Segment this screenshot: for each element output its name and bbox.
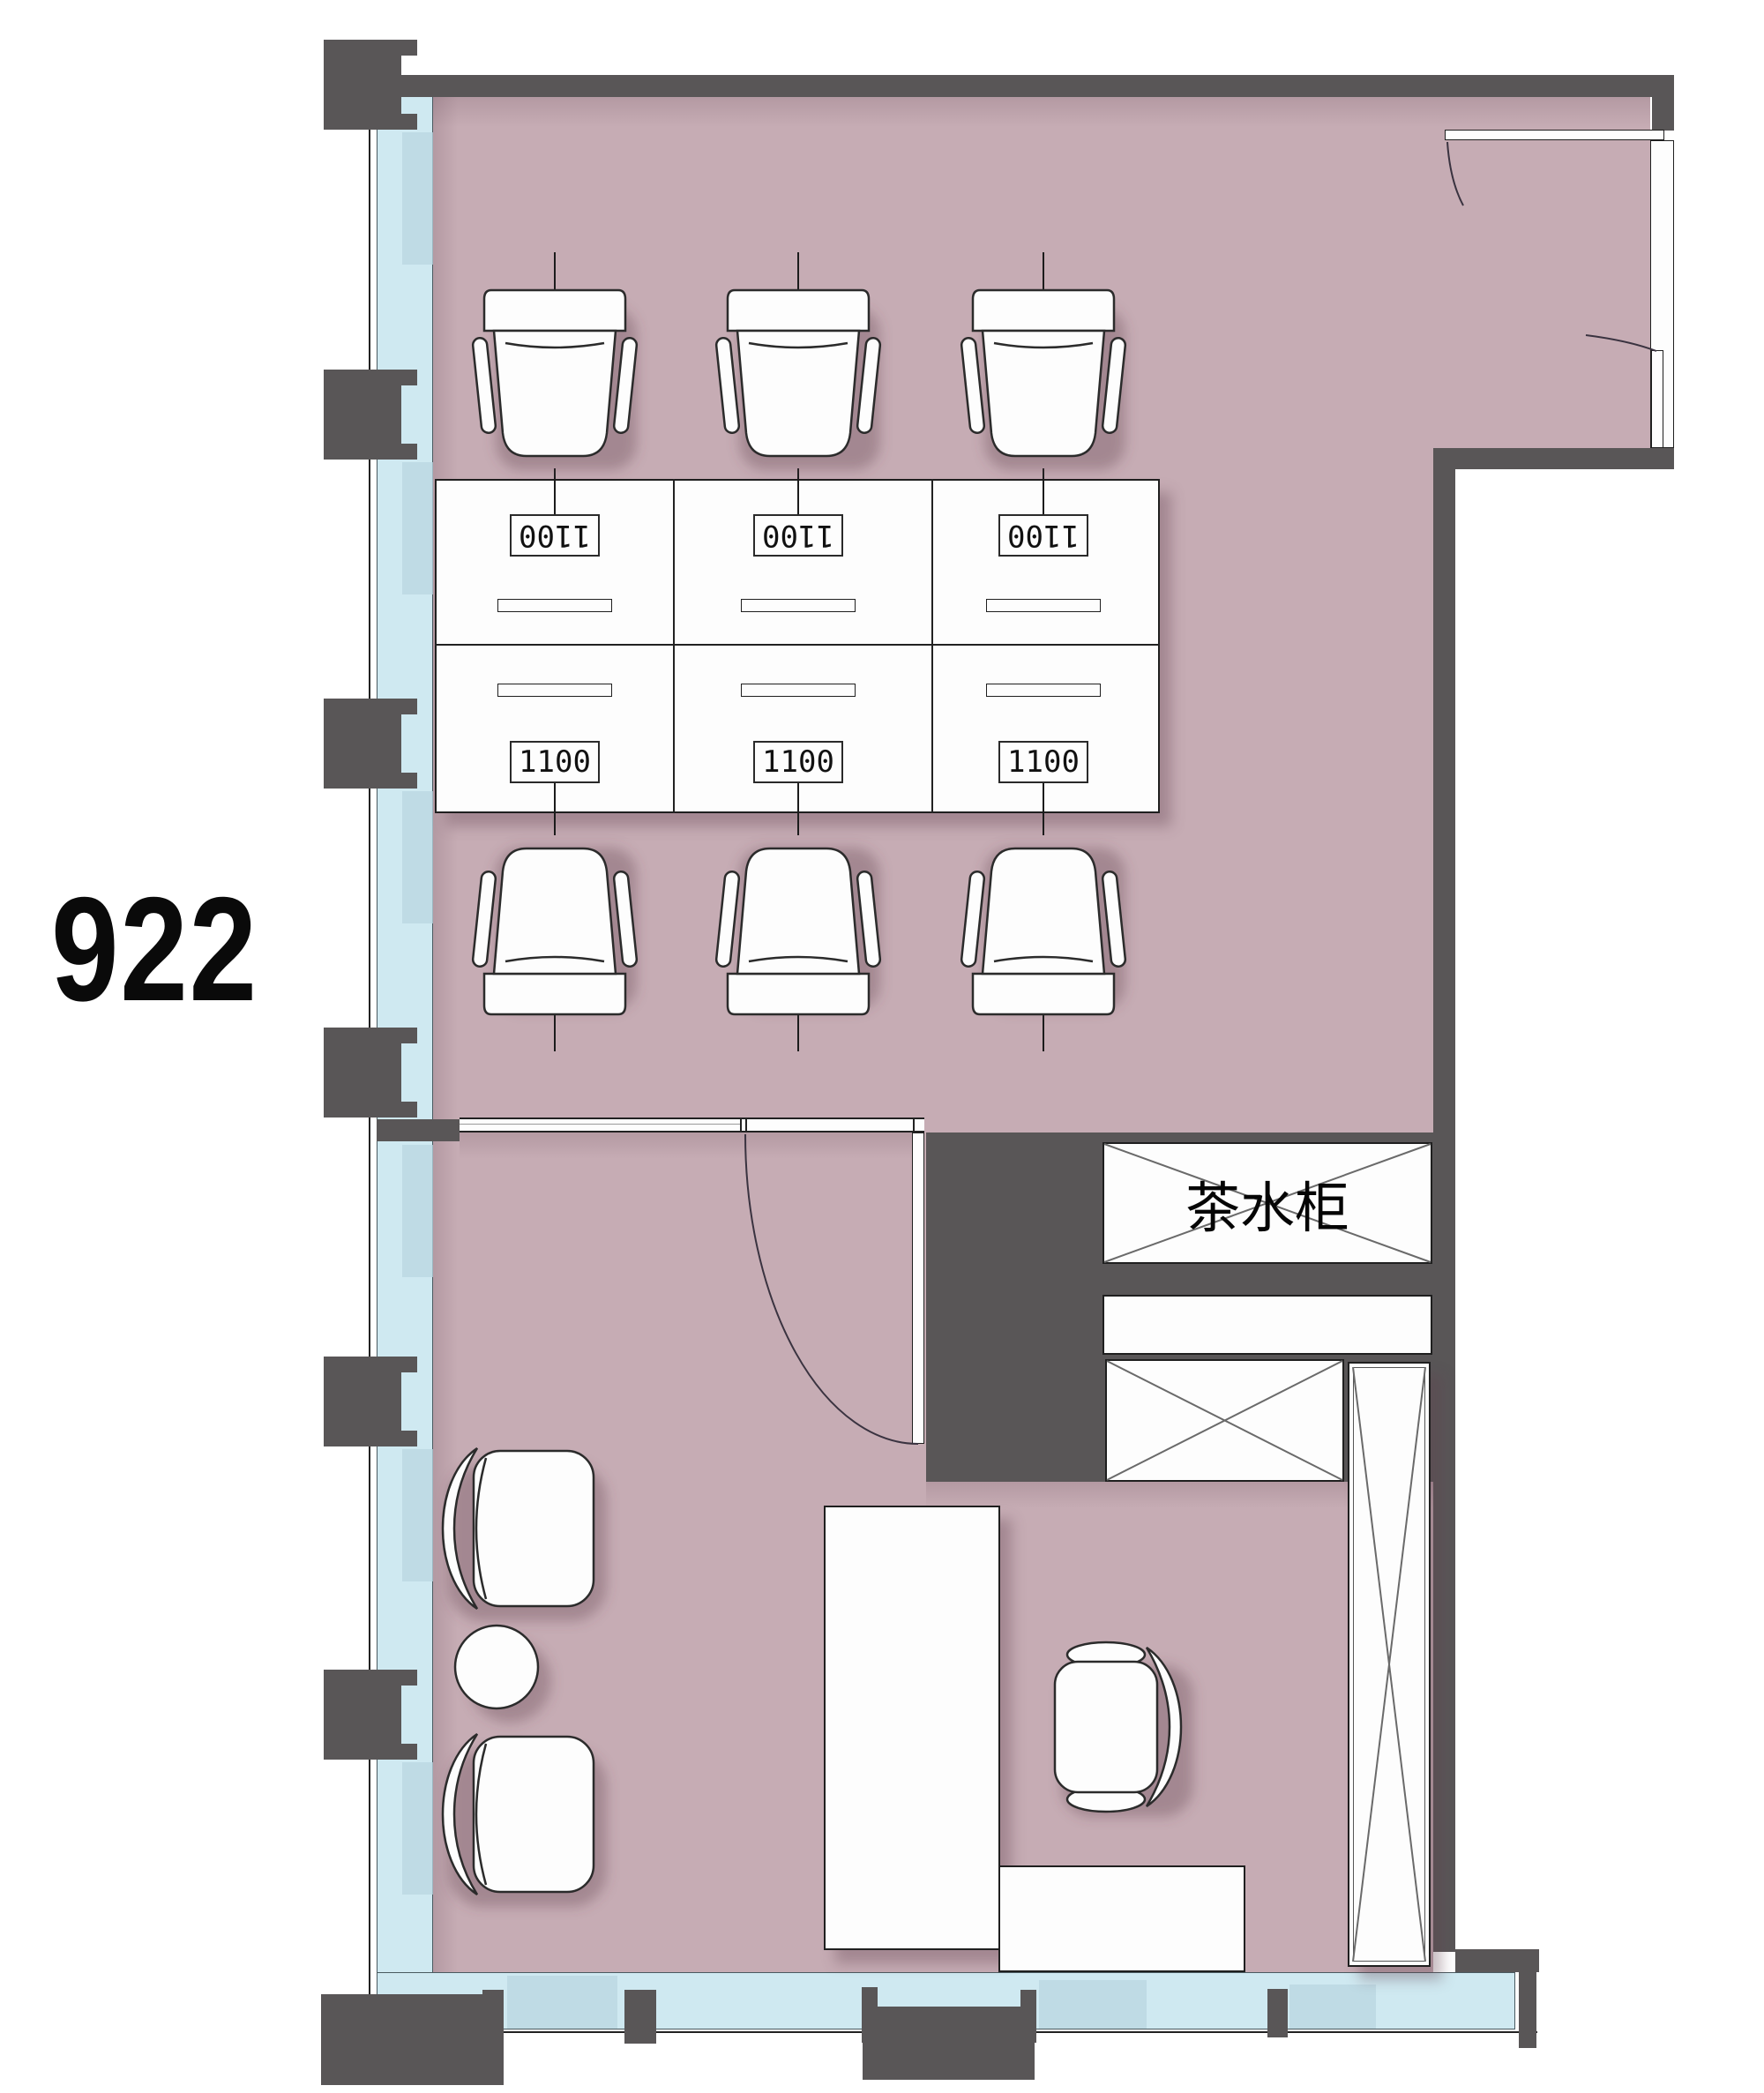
- dimension-text: 1100: [762, 518, 834, 553]
- drawer-slot: [497, 599, 612, 612]
- mullion-block-bottom-center: [863, 2007, 1035, 2080]
- corner-column-tab: [482, 1990, 504, 2043]
- glass-shade: [507, 1976, 617, 2029]
- partition-window-stub: [377, 1119, 460, 1141]
- mullion-tab: [862, 1987, 878, 2043]
- dimension-text: 1100: [1007, 518, 1080, 553]
- dimension-label: 1100: [753, 741, 843, 783]
- dimension-label: 1100: [998, 741, 1088, 783]
- mullion: [324, 1670, 401, 1760]
- dimension-text: 1100: [519, 744, 591, 780]
- desk-divider-h: [435, 644, 1160, 646]
- centerline-tick: [797, 783, 799, 835]
- mullion: [324, 40, 401, 130]
- glass-shade: [1039, 1980, 1147, 2029]
- window-shadow-left: [433, 97, 458, 1972]
- centerline-tick: [797, 252, 799, 296]
- glass-shade: [402, 1449, 433, 1581]
- dimension-label: 1100: [510, 741, 600, 783]
- mullion: [324, 699, 401, 789]
- desk-return: [998, 1865, 1245, 1972]
- top-right-corner-wall: [1652, 75, 1674, 131]
- dimension-text: 1100: [762, 744, 834, 780]
- right-wall-foot: [1519, 1972, 1536, 2048]
- door-jamb: [745, 1118, 747, 1132]
- dimension-label: 1100: [510, 514, 600, 557]
- mullion-stub-bottom: [1267, 1989, 1288, 2037]
- centerline-tick: [1043, 468, 1044, 514]
- floor-plan-922: 1100 1100 1100 1100 1100 1100: [0, 0, 1764, 2093]
- glass-shade: [402, 1145, 433, 1277]
- dimension-text: 1100: [519, 518, 591, 553]
- tall-cabinet: [1348, 1362, 1431, 1967]
- mullion-tab: [1020, 1990, 1036, 2043]
- partition-wall: [460, 1118, 924, 1132]
- alcove-wall-horizontal: [1433, 448, 1674, 469]
- mullion: [324, 1357, 401, 1446]
- corner-column-bottom-left: [321, 1994, 504, 2085]
- door-jamb: [913, 1118, 915, 1132]
- centerline-tick: [1043, 252, 1044, 296]
- centerline-tick: [554, 252, 556, 296]
- entry-screen-top: [1445, 130, 1664, 140]
- drawer-slot: [741, 684, 856, 697]
- mullion: [324, 1028, 401, 1118]
- drawer-slot: [986, 599, 1101, 612]
- centerline-tick: [1043, 1008, 1044, 1051]
- partition-shadow: [460, 1132, 924, 1159]
- glass-shade: [402, 462, 433, 594]
- mullion: [324, 370, 401, 460]
- door-leaf-right-entry: [1651, 350, 1663, 448]
- dimension-label: 1100: [753, 514, 843, 557]
- desk-divider-v: [931, 479, 933, 813]
- centerline-tick: [1043, 783, 1044, 835]
- drawer-slot: [741, 599, 856, 612]
- private-desk: [824, 1506, 1000, 1950]
- floor-upper-office: [433, 97, 1650, 469]
- tall-cabinet-inner: [1353, 1367, 1425, 1962]
- centerline-tick: [554, 468, 556, 514]
- desk-divider-v: [673, 479, 675, 813]
- right-wall-step: [1455, 1949, 1539, 1972]
- dimension-label: 1100: [998, 514, 1088, 557]
- drawer-slot: [986, 684, 1101, 697]
- door-leaf-partition: [912, 1132, 924, 1444]
- drawer-slot: [497, 684, 612, 697]
- glass-shade: [402, 132, 433, 265]
- counter-cabinet: [1102, 1295, 1432, 1355]
- glass-shade: [402, 791, 433, 923]
- centerline-tick: [797, 1008, 799, 1051]
- dimension-text: 1100: [1007, 744, 1080, 780]
- top-wall: [398, 75, 1674, 97]
- mullion-stub-bottom: [624, 1990, 656, 2044]
- tea-cabinet-label-text: 茶水柜: [1185, 1163, 1349, 1243]
- centerline-tick: [554, 1008, 556, 1051]
- centerline-tick: [797, 468, 799, 514]
- centerline-tick: [554, 783, 556, 835]
- partition-midline: [460, 1124, 740, 1125]
- door-jamb: [740, 1118, 742, 1132]
- tea-cabinet-label: 茶水柜: [1102, 1142, 1432, 1264]
- crossed-base-cabinet: [1105, 1359, 1344, 1482]
- room-number: 922: [51, 875, 258, 1023]
- wall-shadow-top: [433, 97, 1650, 127]
- glass-shade: [1289, 1985, 1376, 2029]
- glass-shade: [402, 1762, 433, 1895]
